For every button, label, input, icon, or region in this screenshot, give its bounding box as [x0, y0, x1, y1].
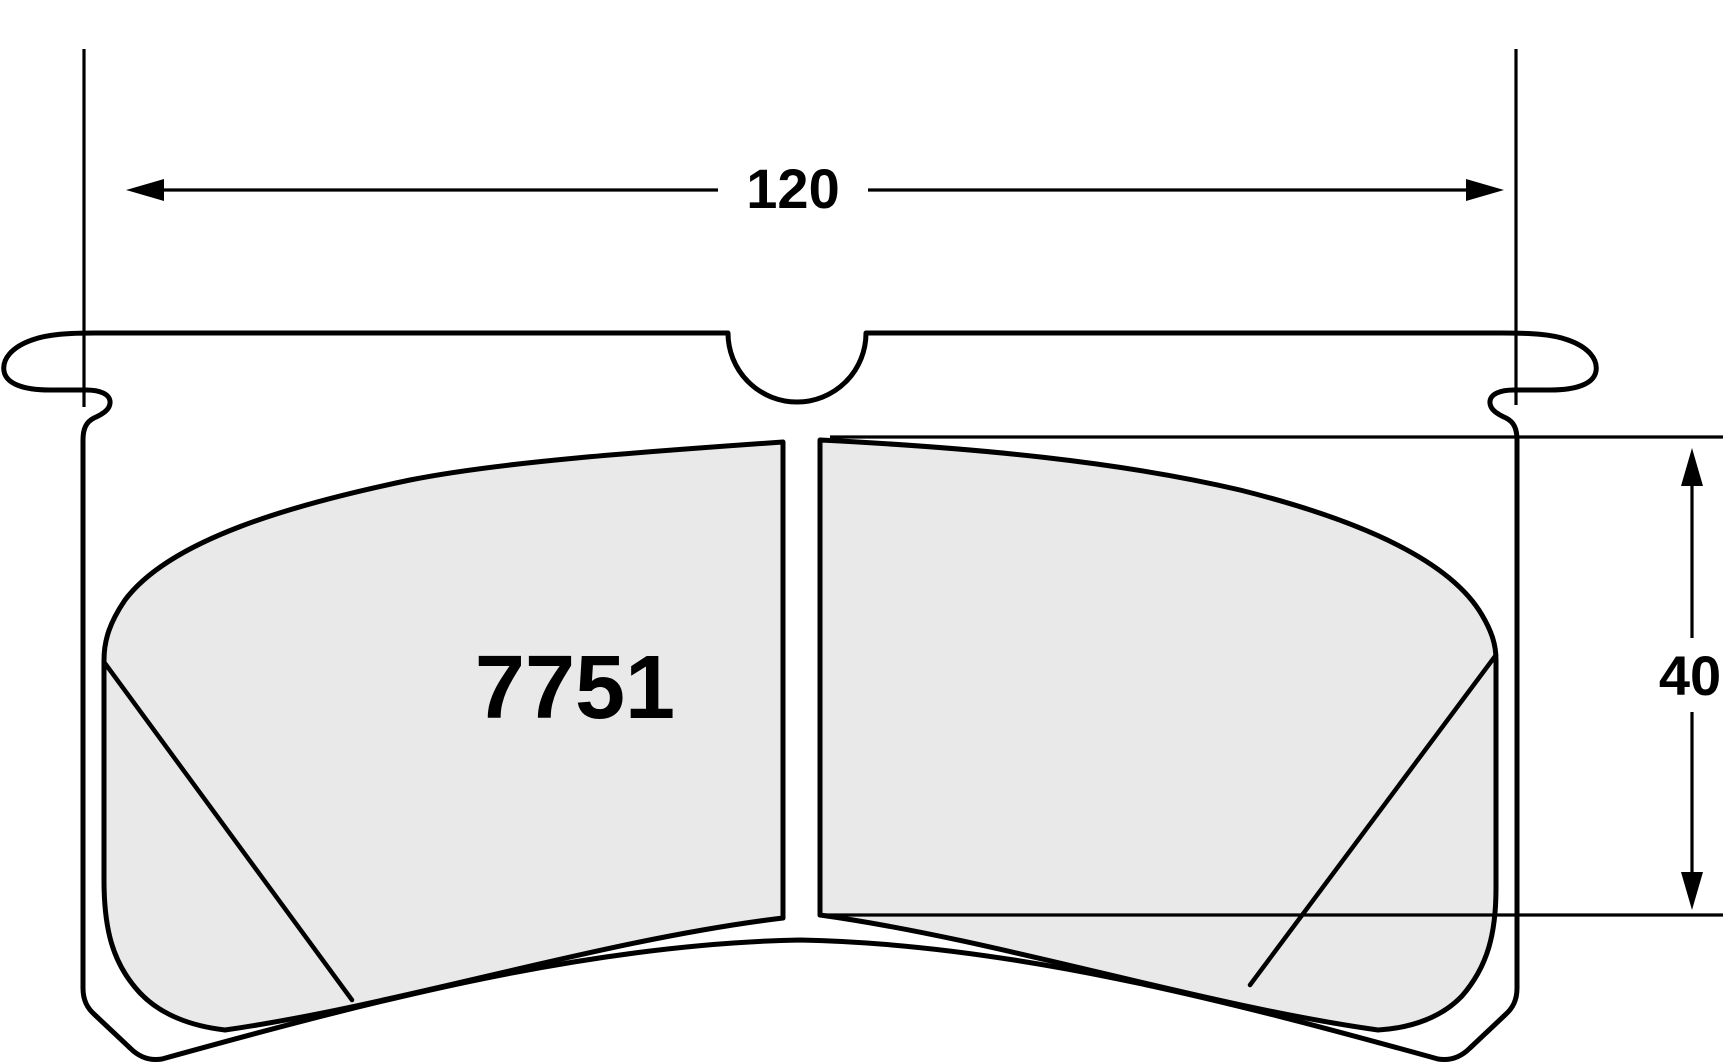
friction-pad-left	[104, 442, 783, 1030]
drawing-canvas: 120 40 7751	[0, 0, 1735, 1064]
dimension-arrow-up-icon	[1681, 448, 1703, 486]
dimension-width: 120	[84, 49, 1516, 407]
dimension-width-label: 120	[746, 157, 839, 220]
dimension-height-label: 40	[1659, 644, 1721, 707]
friction-pad-right	[820, 440, 1496, 1030]
dimension-arrow-down-icon	[1681, 872, 1703, 910]
technical-drawing: 120 40 7751	[0, 0, 1735, 1064]
part-number-label: 7751	[475, 638, 675, 738]
dimension-arrow-left-icon	[126, 179, 164, 201]
dimension-arrow-right-icon	[1466, 179, 1504, 201]
